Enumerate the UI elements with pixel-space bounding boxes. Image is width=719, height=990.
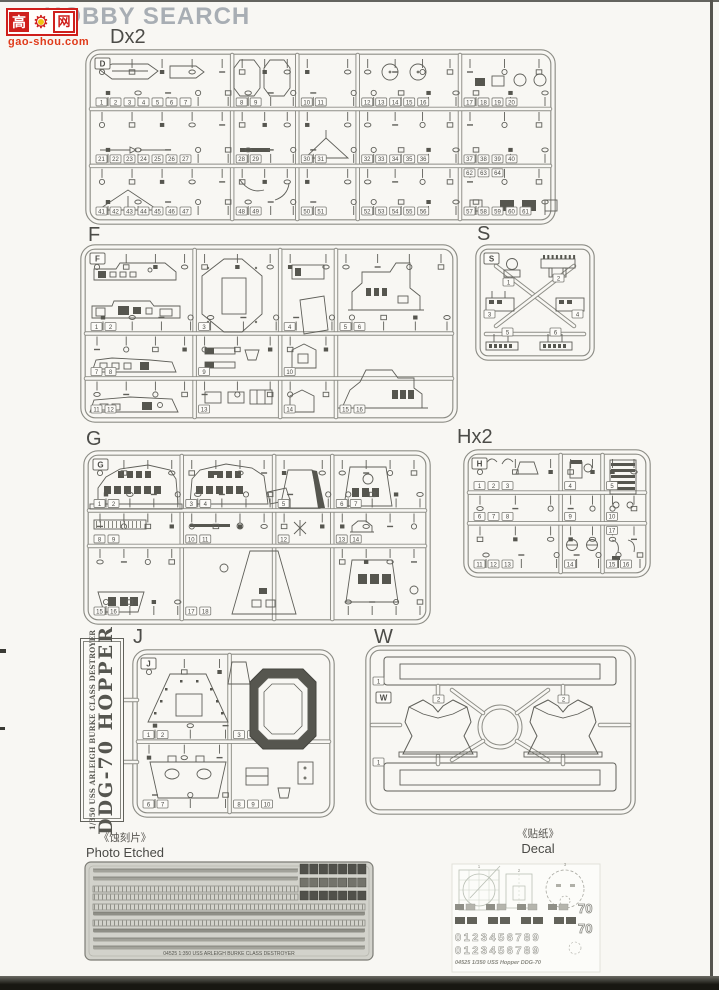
decal-caption-en: Decal [468,841,608,856]
svg-text:59: 59 [494,209,501,215]
svg-text:14: 14 [286,407,293,413]
sprue-label-h: Hx2 [457,426,493,449]
svg-text:31: 31 [317,157,324,163]
scan-speck [0,727,5,730]
svg-text:14: 14 [567,562,574,568]
decal-sheet: 12370700123456789012345678904525 1/350 U… [452,862,600,972]
svg-text:41: 41 [98,209,105,215]
scan-edge-top [0,0,719,2]
svg-text:10: 10 [286,370,293,376]
svg-text:22: 22 [112,157,119,163]
svg-text:13: 13 [201,407,208,413]
svg-text:12: 12 [490,562,497,568]
svg-text:16: 16 [420,100,427,106]
svg-text:45: 45 [154,209,161,215]
svg-text:43: 43 [126,209,133,215]
svg-text:12: 12 [364,100,371,106]
svg-text:21: 21 [98,157,105,163]
svg-text:18: 18 [480,100,487,106]
svg-text:19: 19 [494,100,501,106]
svg-text:14: 14 [352,537,359,543]
svg-text:24: 24 [140,157,147,163]
svg-text:16: 16 [623,562,630,568]
svg-text:64: 64 [494,171,501,177]
scan-edge-bottom [0,976,719,990]
sprue-label-w: W [374,626,393,649]
svg-text:10: 10 [264,802,271,808]
svg-text:48: 48 [238,209,245,215]
svg-text:32: 32 [364,157,371,163]
logo-url: gao-shou.com [8,36,89,48]
svg-text:47: 47 [182,209,189,215]
sprue-label-d: Dx2 [110,26,146,49]
svg-text:55: 55 [406,209,413,215]
svg-text:36: 36 [420,157,427,163]
svg-text:17: 17 [188,609,195,615]
svg-text:17: 17 [466,100,473,106]
decal-caption: 《贴纸》 Decal [468,826,608,856]
svg-text:54: 54 [392,209,399,215]
svg-text:42: 42 [112,209,119,215]
decal-hull-number: 70 [578,901,592,916]
gear-icon: ⚙ [30,12,52,32]
sprue-label-f: F [88,224,100,247]
svg-text:46: 46 [168,209,175,215]
decal-numerals: 0123456789 [455,932,541,944]
svg-text:F: F [95,255,100,264]
svg-text:18: 18 [202,609,209,615]
sprue-W: 1221W [368,648,633,812]
svg-text:34: 34 [392,157,399,163]
svg-text:17: 17 [609,529,616,535]
sprue-H: 1234567891011121314151617H [466,452,648,575]
sprue-F: 12345678910111213141516F [83,247,455,420]
svg-text:39: 39 [494,157,501,163]
svg-text:H: H [477,460,483,469]
kit-nameplate: 1/350 USS ARLEIGH BURKE CLASS DESTROYER … [80,638,124,822]
decal-hull-number: 70 [578,921,592,936]
logo-cn-right: 网 [53,11,75,33]
svg-text:15: 15 [96,609,103,615]
logo-cn-left: 高 [9,12,29,32]
photo-etched-fret: 04525 1:350 USS ARLEIGH BURKE CLASS DEST… [85,862,373,960]
svg-text:12: 12 [280,537,287,543]
photo-etched-caption-cn: 《蚀刻片》 [58,830,192,845]
svg-text:58: 58 [480,209,487,215]
svg-text:13: 13 [378,100,385,106]
svg-text:15: 15 [609,562,616,568]
svg-text:23: 23 [126,157,133,163]
scan-edge-right [710,0,713,990]
gao-shou-logo: 高 ⚙ 网 [6,8,78,36]
svg-text:S: S [489,255,495,264]
decal-numerals: 0123456789 [455,945,541,957]
decal-caption-cn: 《贴纸》 [468,826,608,841]
photo-etched-caption-en: Photo Etched [58,845,192,860]
svg-text:25: 25 [154,157,161,163]
sprue-label-g: G [86,428,102,451]
svg-text:26: 26 [168,157,175,163]
svg-text:10: 10 [609,515,616,521]
svg-text:49: 49 [252,209,259,215]
sprue-label-s: S [477,223,490,246]
svg-text:30: 30 [303,157,310,163]
sprue-G: 123456789101112131415161718G [86,453,428,622]
svg-text:51: 51 [317,209,324,215]
svg-text:37: 37 [466,157,473,163]
svg-text:35: 35 [406,157,413,163]
sprue-S: 123456S [478,247,592,358]
svg-text:D: D [100,60,106,69]
svg-text:28: 28 [238,157,245,163]
svg-text:53: 53 [378,209,385,215]
svg-text:62: 62 [466,171,473,177]
svg-text:10: 10 [303,100,310,106]
svg-text:10: 10 [188,537,195,543]
decal-sheet-text: 04525 1/350 USS Hopper DDG-70 [455,960,541,966]
svg-text:20: 20 [508,100,515,106]
svg-text:16: 16 [356,407,363,413]
kit-nameplate-line2: DDG-70 HOPPER [97,625,116,835]
svg-text:J: J [146,660,150,669]
svg-text:56: 56 [420,209,427,215]
svg-text:27: 27 [182,157,189,163]
svg-text:12: 12 [107,407,114,413]
sprue-label-j: J [133,626,143,649]
svg-text:15: 15 [406,100,413,106]
svg-text:38: 38 [480,157,487,163]
svg-text:11: 11 [202,537,209,543]
svg-text:40: 40 [508,157,515,163]
svg-text:11: 11 [476,562,483,568]
svg-text:57: 57 [466,209,473,215]
svg-text:G: G [97,461,103,470]
svg-text:13: 13 [338,537,345,543]
svg-text:29: 29 [252,157,259,163]
svg-text:60: 60 [508,209,515,215]
svg-text:16: 16 [110,609,117,615]
svg-text:61: 61 [522,209,529,215]
svg-text:13: 13 [504,562,511,568]
svg-text:63: 63 [480,171,487,177]
svg-text:W: W [380,694,388,703]
svg-text:14: 14 [392,100,399,106]
scan-speck [0,649,6,653]
svg-text:52: 52 [364,209,371,215]
svg-text:11: 11 [93,407,100,413]
photo-etched-caption: 《蚀刻片》 Photo Etched [58,830,192,860]
svg-text:15: 15 [342,407,349,413]
svg-text:44: 44 [140,209,147,215]
j-octagon-part [250,669,316,749]
pe-fret-text: 04525 1:350 USS ARLEIGH BURKE CLASS DEST… [163,951,295,957]
svg-text:50: 50 [303,209,310,215]
instruction-sheet-page: 1234567891011121314151617181920212223242… [0,0,719,990]
sprue-D: 1234567891011121314151617181920212223242… [88,52,557,222]
svg-text:11: 11 [318,100,325,106]
svg-text:33: 33 [378,157,385,163]
